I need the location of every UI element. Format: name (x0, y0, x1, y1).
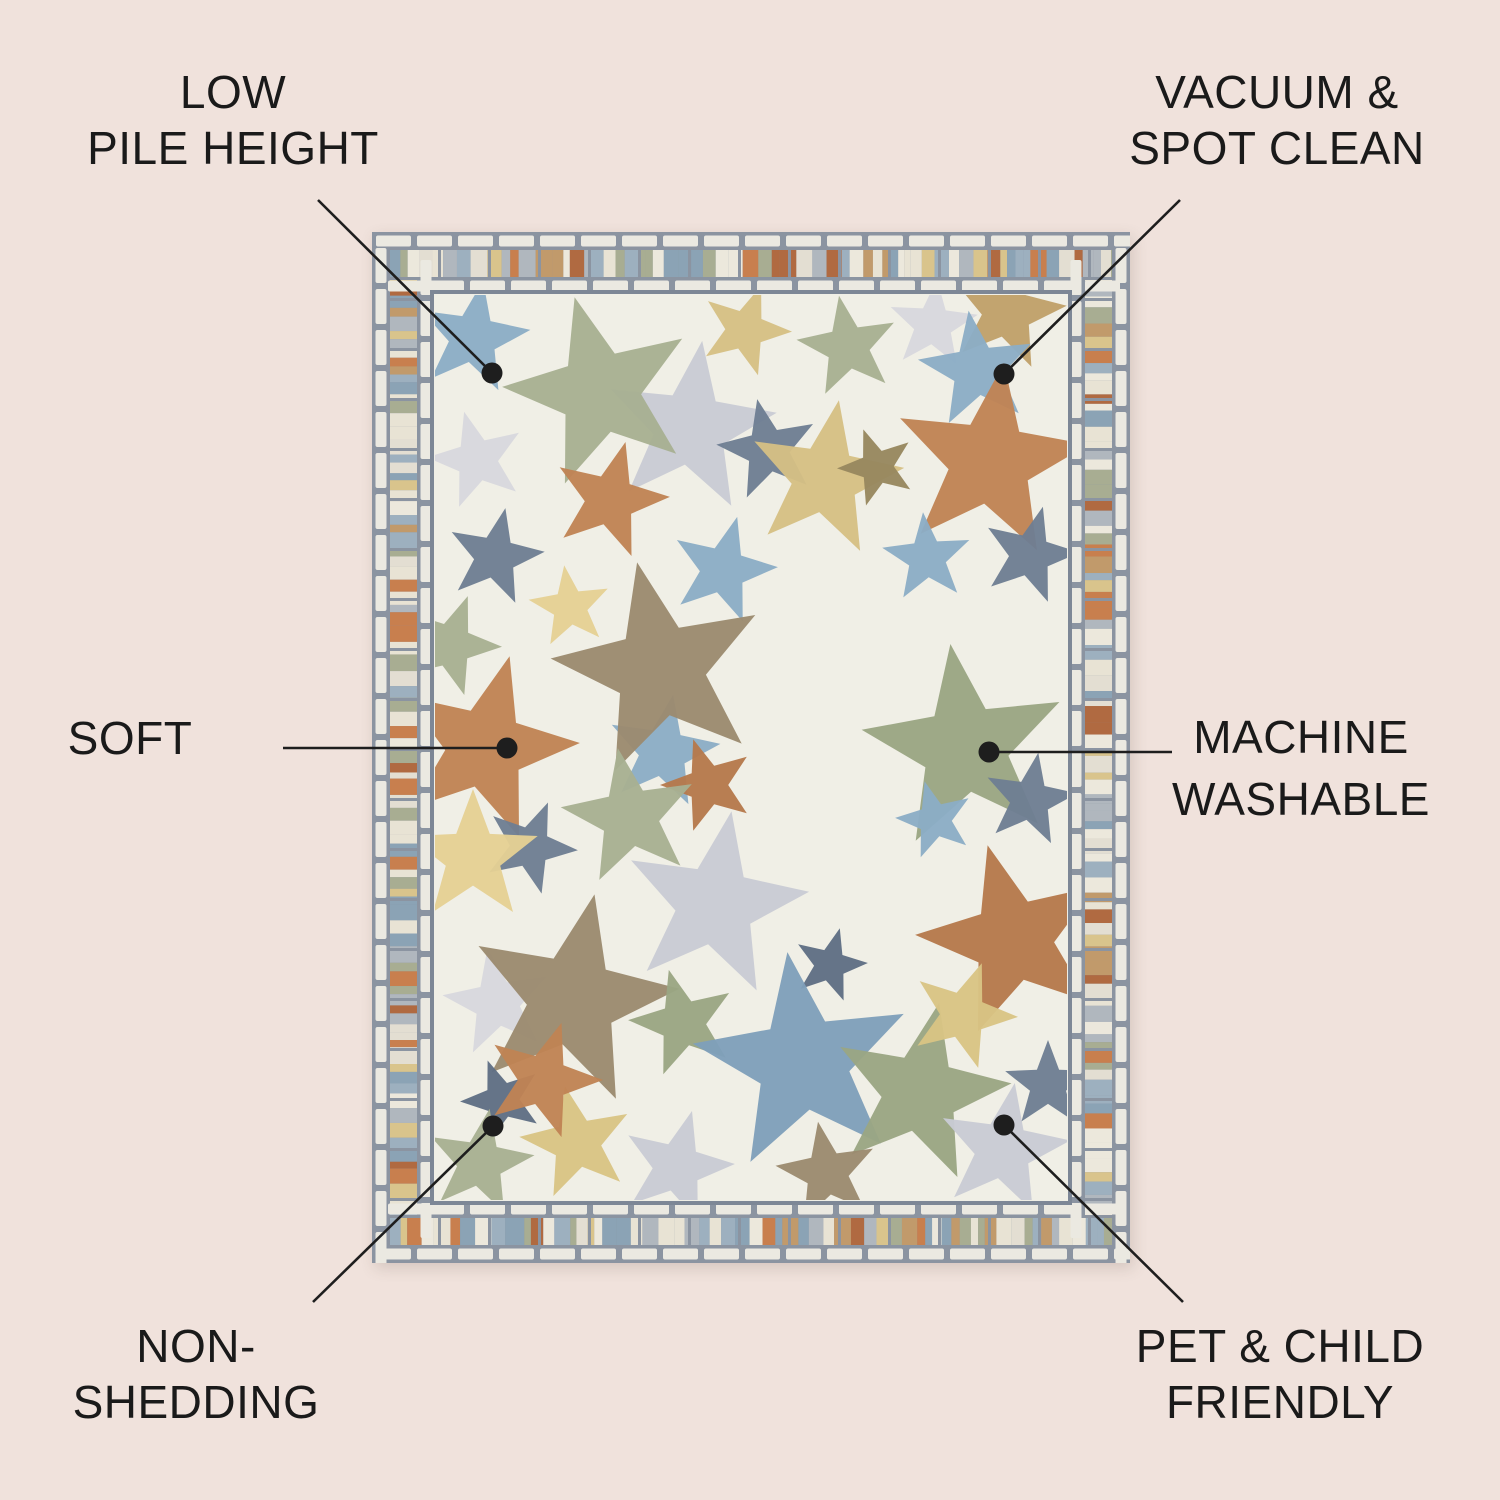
border-brick (376, 1232, 387, 1263)
label-line: VACUUM & (1077, 64, 1477, 120)
border-brick (376, 535, 387, 570)
border-brick (1116, 576, 1127, 611)
feature-label-vacuum-spot-clean: VACUUM & SPOT CLEAN (1077, 64, 1477, 176)
feature-label-machine-washable: MACHINE WASHABLE (1101, 706, 1500, 830)
border-brick (909, 1249, 944, 1260)
border-brick (376, 248, 387, 283)
border-brick (745, 1249, 780, 1260)
border-brick (1114, 236, 1130, 247)
feature-label-non-shedding: NON- SHEDDING (0, 1318, 396, 1430)
border-brick (868, 236, 903, 247)
border-brick (376, 330, 387, 365)
border-brick (622, 1249, 657, 1260)
label-line: FRIENDLY (1080, 1374, 1480, 1430)
border-brick (376, 740, 387, 775)
border-brick (991, 236, 1026, 247)
border-brick (499, 236, 534, 247)
border-brick (1073, 1249, 1108, 1260)
border-brick (581, 236, 616, 247)
border-brick (458, 236, 493, 247)
border-brick (417, 1249, 452, 1260)
border-brick (1116, 699, 1127, 734)
border-brick (376, 1027, 387, 1062)
border-brick (1116, 658, 1127, 693)
border-brick (1116, 1027, 1127, 1062)
border-brick (417, 236, 452, 247)
border-brick (1116, 1068, 1127, 1103)
border-brick (950, 236, 985, 247)
label-line: PET & CHILD (1080, 1318, 1480, 1374)
border-brick (704, 1249, 739, 1260)
border-brick (376, 412, 387, 447)
border-brick (376, 371, 387, 406)
border-brick (376, 699, 387, 734)
border-brick (1116, 248, 1127, 283)
border-brick (376, 1109, 387, 1144)
border-brick (1073, 236, 1108, 247)
border-brick (376, 289, 387, 324)
border-brick (663, 236, 698, 247)
border-brick (1116, 453, 1127, 488)
border-brick (991, 1249, 1026, 1260)
border-brick (376, 904, 387, 939)
border-brick (663, 1249, 698, 1260)
border-brick (1116, 371, 1127, 406)
border-brick (376, 1068, 387, 1103)
border-brick (622, 236, 657, 247)
border-brick (376, 945, 387, 980)
label-line: SHEDDING (0, 1374, 396, 1430)
border-brick (1116, 412, 1127, 447)
border-brick (1116, 822, 1127, 857)
border-brick (1116, 535, 1127, 570)
label-line: MACHINE (1101, 706, 1500, 768)
border-brick (376, 494, 387, 529)
feature-label-low-pile-height: LOW PILE HEIGHT (33, 64, 433, 176)
border-brick (1116, 781, 1127, 816)
border-brick (1116, 986, 1127, 1021)
rug-product-image (372, 232, 1130, 1263)
border-brick (376, 453, 387, 488)
label-line: PILE HEIGHT (33, 120, 433, 176)
border-brick (376, 617, 387, 652)
border-brick (1116, 617, 1127, 652)
border-brick (540, 236, 575, 247)
border-brick (827, 1249, 862, 1260)
border-brick (786, 236, 821, 247)
border-brick (1116, 289, 1127, 324)
label-line: SPOT CLEAN (1077, 120, 1477, 176)
feature-label-pet-child-friendly: PET & CHILD FRIENDLY (1080, 1318, 1480, 1430)
product-feature-image: { "page": { "background": "#f0e2dc", "te… (0, 0, 1500, 1500)
border-brick (1116, 945, 1127, 980)
border-brick (376, 1191, 387, 1226)
border-brick (827, 236, 862, 247)
border-brick (376, 781, 387, 816)
border-brick (1116, 863, 1127, 898)
border-brick (1116, 1232, 1127, 1263)
border-brick (786, 1249, 821, 1260)
border-brick (376, 822, 387, 857)
border-brick (745, 236, 780, 247)
label-line: WASHABLE (1101, 768, 1500, 830)
border-brick (1116, 740, 1127, 775)
border-brick (376, 576, 387, 611)
border-brick (376, 1150, 387, 1185)
border-brick (704, 236, 739, 247)
label-line: LOW (33, 64, 433, 120)
border-brick (1032, 1249, 1067, 1260)
feature-label-soft: SOFT (30, 710, 230, 766)
border-brick (376, 658, 387, 693)
border-brick (376, 236, 411, 247)
label-line: NON- (0, 1318, 396, 1374)
label-line: SOFT (30, 710, 230, 766)
border-brick (458, 1249, 493, 1260)
border-brick (499, 1249, 534, 1260)
border-brick (1032, 236, 1067, 247)
border-brick (376, 986, 387, 1021)
border-brick (909, 236, 944, 247)
border-brick (1116, 1109, 1127, 1144)
border-brick (376, 863, 387, 898)
border-brick (1116, 1150, 1127, 1185)
border-brick (868, 1249, 903, 1260)
border-brick (540, 1249, 575, 1260)
border-brick (1116, 494, 1127, 529)
border-brick (1116, 904, 1127, 939)
border-brick (950, 1249, 985, 1260)
border-brick (581, 1249, 616, 1260)
border-brick (1116, 330, 1127, 365)
